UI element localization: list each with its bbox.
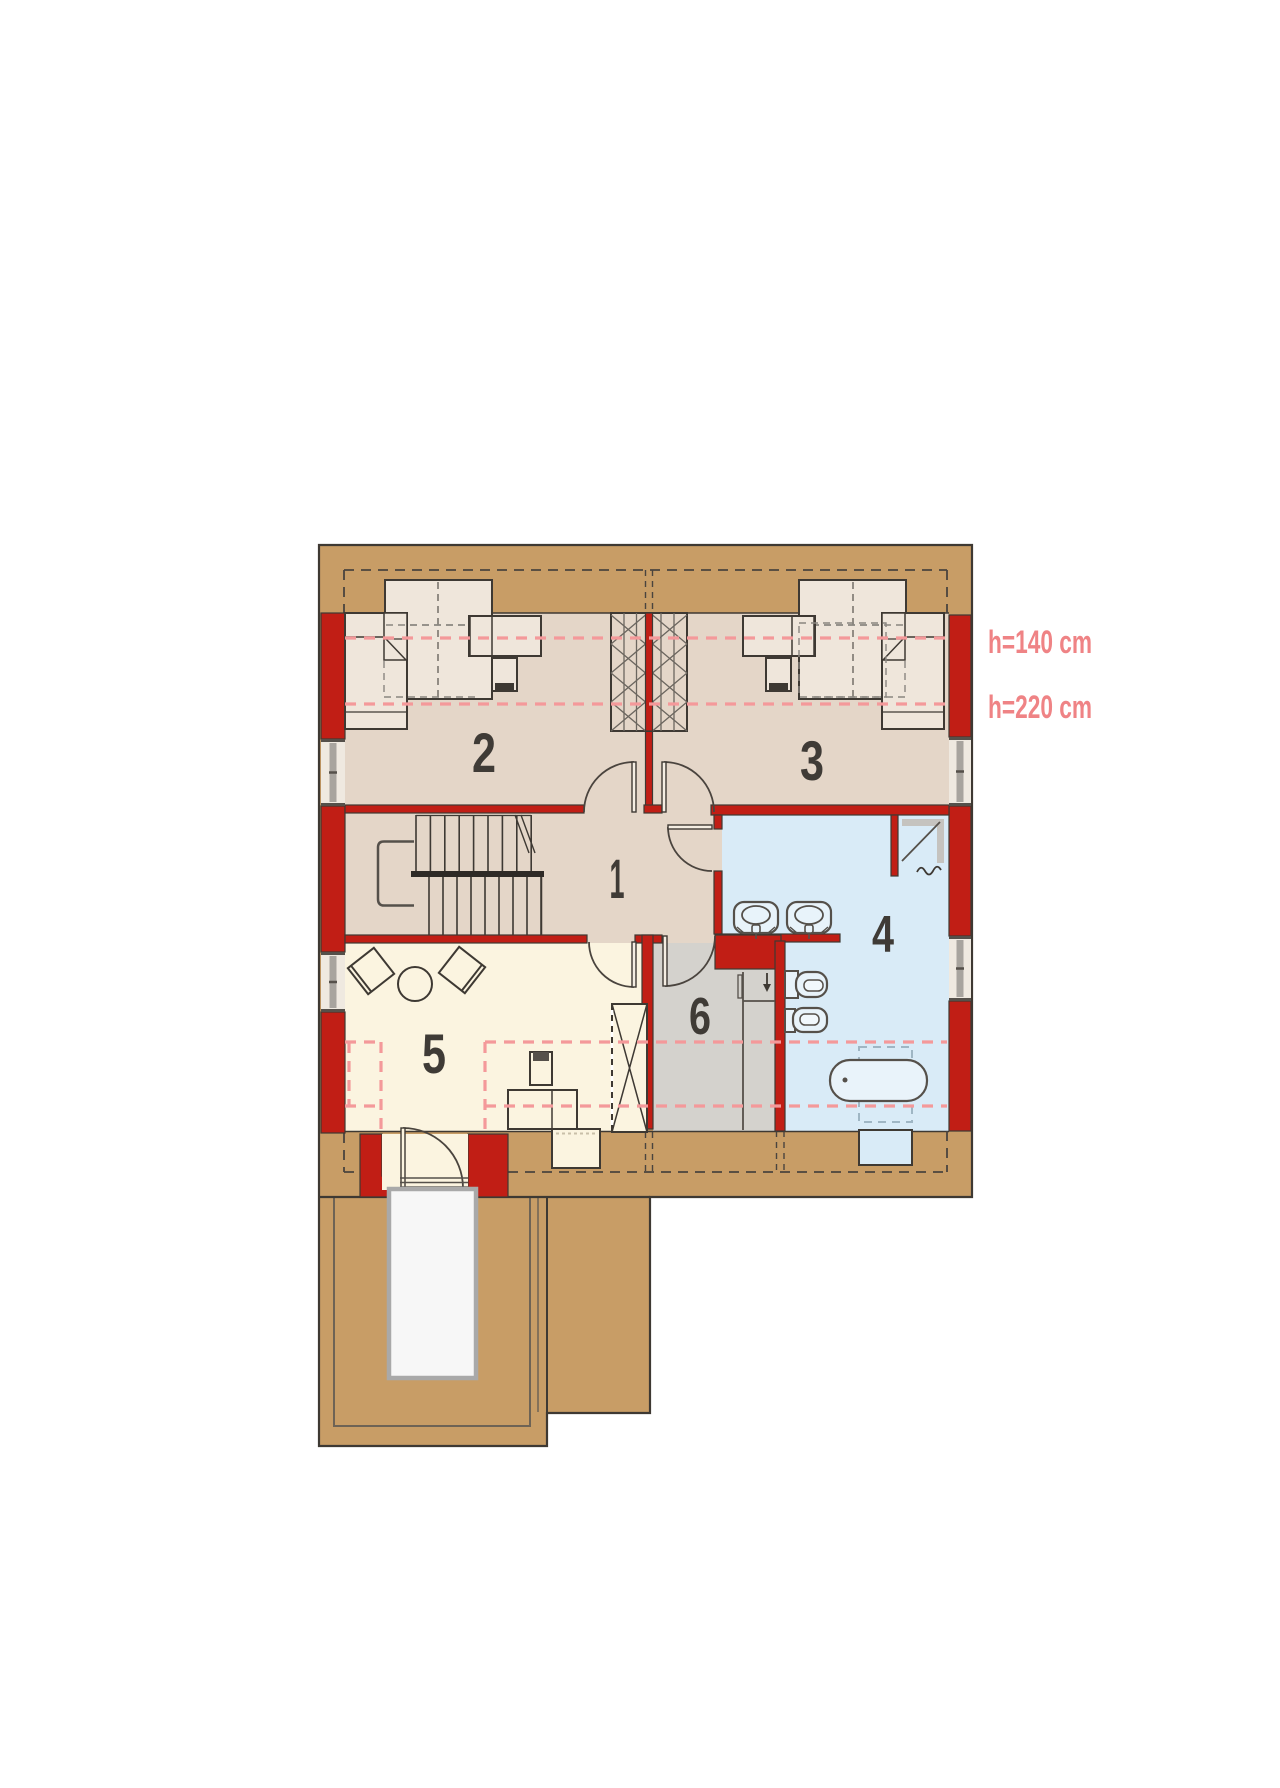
svg-text:h=140 cm: h=140 cm	[988, 624, 1092, 660]
svg-text:h=220 cm: h=220 cm	[988, 689, 1092, 725]
svg-text:6: 6	[689, 988, 711, 1046]
svg-text:1: 1	[610, 847, 625, 910]
svg-text:2: 2	[472, 721, 496, 784]
svg-text:5: 5	[422, 1022, 446, 1085]
svg-text:3: 3	[800, 729, 824, 792]
svg-text:4: 4	[872, 906, 894, 964]
